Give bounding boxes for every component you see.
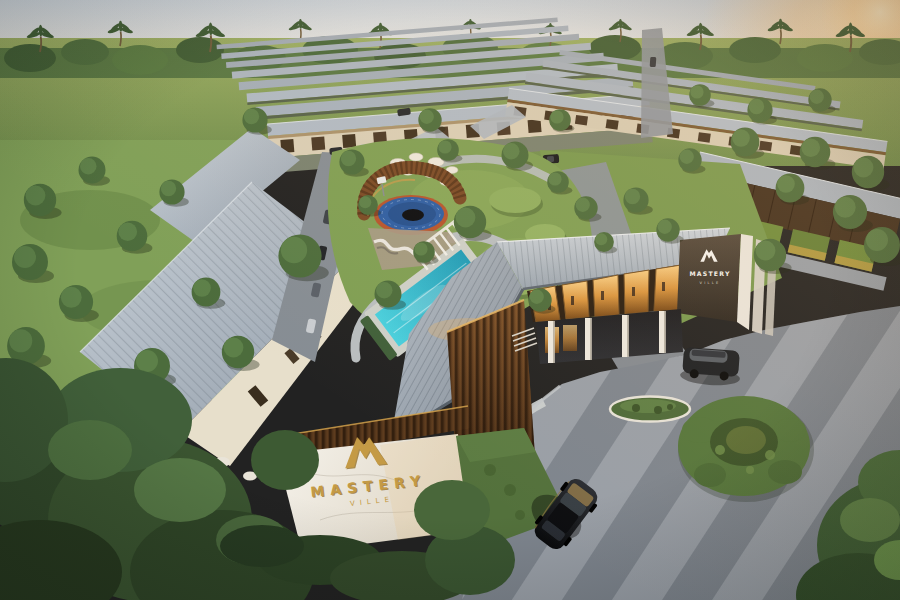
vignette [0,0,900,600]
aerial-render: MASTERY VILLE [0,0,900,600]
